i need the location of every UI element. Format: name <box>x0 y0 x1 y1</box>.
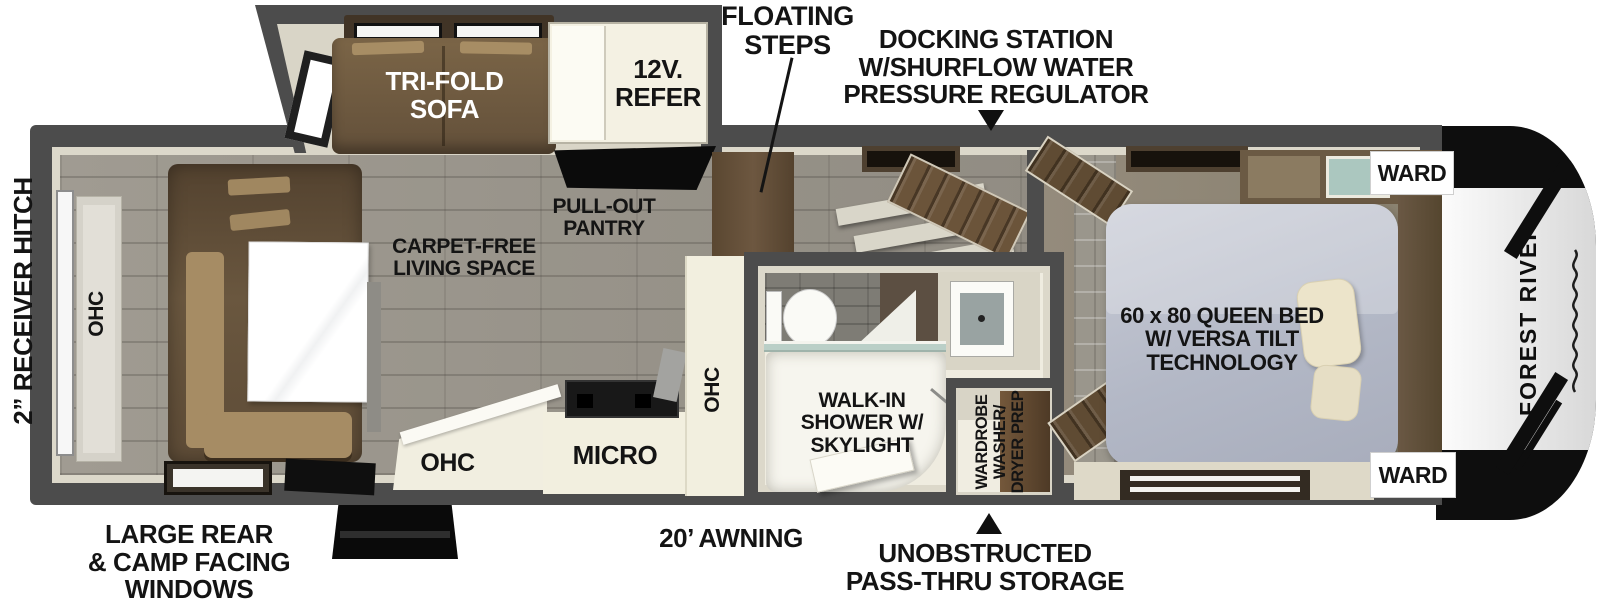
front-cap: FOREST RIVER <box>1436 126 1596 520</box>
rear-windows-label: LARGE REAR & CAMP FACING WINDOWS <box>55 521 323 601</box>
vanity-sink <box>950 281 1014 357</box>
cooktop-knobs <box>577 394 593 408</box>
ward-top-label: WARD <box>1378 161 1447 185</box>
front-cap-band: FOREST RIVER <box>1436 188 1596 450</box>
ward-bottom-label: WARD <box>1379 463 1448 487</box>
rear-window <box>56 190 74 456</box>
kitchen-ohc-column-label: OHC <box>702 335 728 445</box>
window-glass <box>173 469 263 487</box>
toilet-bowl <box>783 289 837 347</box>
bottom-wall-window <box>164 461 272 495</box>
receiver-hitch-label: 2” RECEIVER HITCH <box>10 141 46 461</box>
window-slat <box>1130 476 1300 481</box>
kitchen-ohc-label: OHC <box>400 450 495 477</box>
step-edge <box>340 531 450 538</box>
brand-signature-squiggle-icon <box>1564 246 1586 396</box>
docking-station-label: DOCKING STATION W/SHURFLOW WATER PRESSUR… <box>820 26 1172 109</box>
window-slat <box>1130 487 1300 492</box>
entry-wood-panel <box>712 152 794 258</box>
refer-label: 12V. REFER <box>598 56 718 111</box>
entry-door-mat <box>284 459 376 496</box>
carpet-free-label: CARPET-FREE LIVING SPACE <box>368 236 560 281</box>
bedroom-skylight <box>1126 146 1248 172</box>
queen-bed-label: 60 x 80 QUEEN BED W/ VERSA TILT TECHNOLO… <box>1112 304 1332 374</box>
bath-door-swing <box>858 290 916 344</box>
entertainment-console <box>554 146 716 190</box>
down-arrow-icon <box>978 110 1004 131</box>
marble-table <box>247 241 368 402</box>
wardrobe-shelf <box>1248 156 1320 198</box>
wardrobe-wd-label: WARDROBE WASHER/ DRYER PREP <box>974 383 1030 501</box>
tri-fold-sofa-label: TRI-FOLD SOFA <box>352 68 537 123</box>
toilet-tank <box>766 291 782 347</box>
bed-headboard-wall <box>1398 196 1442 464</box>
ward-top-box: WARD <box>1370 151 1454 195</box>
pass-thru-storage-label: UNOBSTRUCTED PASS-THRU STORAGE <box>800 540 1170 595</box>
sink-basin <box>960 293 1004 345</box>
micro-label: MICRO <box>550 442 680 470</box>
walk-in-shower-label: WALK-IN SHOWER W/ SKYLIGHT <box>782 390 942 457</box>
ward-bottom-box: WARD <box>1370 452 1456 498</box>
sectional-chaise-cushion <box>204 412 352 458</box>
bedroom-bottom-window <box>1120 470 1310 500</box>
shower-glass <box>764 341 946 352</box>
pull-out-pantry-label: PULL-OUT PANTRY <box>528 196 680 241</box>
rear-ohc-label: OHC <box>86 252 112 376</box>
brand-label: FOREST RIVER <box>1516 174 1550 464</box>
sofa-cushion-trim <box>352 41 424 56</box>
sofa-cushion-trim <box>460 41 532 54</box>
exterior-entry-steps <box>332 505 458 559</box>
floorplan-canvas: FOREST RIVER TRI-FOLD SOFA 12V. REFER WA… <box>0 0 1600 601</box>
half-wall-partition <box>367 282 381 432</box>
sink-drain <box>978 315 985 322</box>
up-arrow-icon <box>976 513 1002 534</box>
sectional-armrest <box>228 176 291 195</box>
